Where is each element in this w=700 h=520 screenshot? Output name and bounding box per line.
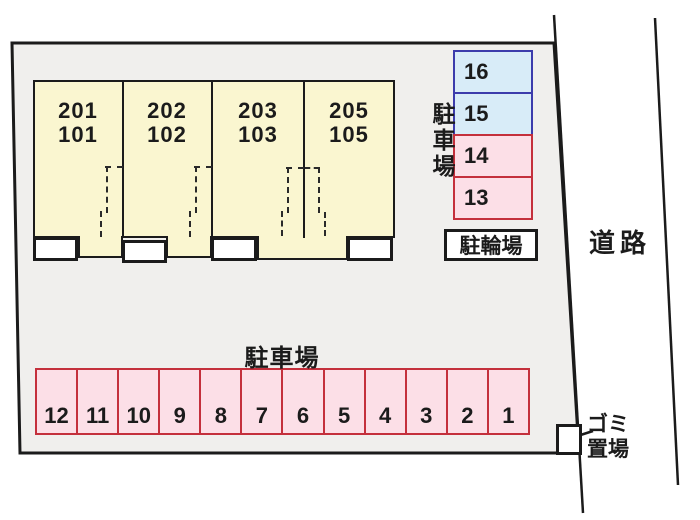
unit-lower-number: 103 [213, 123, 303, 147]
parking-space-3: 3 [405, 368, 448, 435]
stair-dash [305, 167, 319, 169]
building-step [78, 236, 123, 258]
parking-space-13: 13 [453, 176, 533, 220]
parking-space-2: 2 [446, 368, 489, 435]
garbage-area-label: ゴミ 置場 [587, 412, 629, 462]
bicycle-parking-label: 駐輪場 [460, 230, 523, 260]
parking-space-5: 5 [323, 368, 366, 435]
side-parking-label: 駐車場 [425, 102, 459, 180]
entrance-porch-4 [347, 237, 393, 261]
bottom-parking-row: 12 11 10 9 8 7 6 5 4 3 2 1 [35, 368, 530, 435]
stair-dash [318, 167, 320, 213]
space-number: 13 [464, 185, 488, 211]
space-number: 15 [464, 101, 488, 127]
road-edge-right [655, 18, 678, 485]
stair-dash [106, 166, 108, 213]
building-step [166, 236, 212, 258]
stair-dash [100, 211, 102, 237]
space-number: 14 [464, 143, 488, 169]
unit-label-205-105: 205 105 [304, 99, 394, 147]
parking-space-4: 4 [364, 368, 407, 435]
entrance-porch-3 [211, 237, 257, 261]
space-number: 16 [464, 59, 488, 85]
unit-label-202-102: 202 102 [122, 99, 212, 147]
stair-dash [189, 211, 191, 237]
parking-space-8: 8 [199, 368, 242, 435]
parking-space-7: 7 [240, 368, 283, 435]
stair-dash [324, 212, 326, 236]
unit-lower-number: 102 [122, 123, 212, 147]
garbage-label-line1: ゴミ [587, 412, 629, 437]
bicycle-parking-box: 駐輪場 [444, 229, 538, 261]
entrance-porch-2 [122, 240, 167, 263]
building-step [257, 236, 348, 260]
space-number: 4 [379, 403, 391, 429]
unit-upper-number: 205 [304, 99, 394, 123]
space-number: 9 [174, 403, 186, 429]
bottom-parking-label: 駐車場 [232, 338, 332, 373]
parking-space-15: 15 [453, 92, 533, 136]
space-number: 7 [256, 403, 268, 429]
parking-space-12: 12 [35, 368, 78, 435]
unit-upper-number: 203 [213, 99, 303, 123]
space-number: 5 [338, 403, 350, 429]
space-number: 11 [86, 403, 109, 429]
space-number: 6 [297, 403, 309, 429]
unit-lower-number: 105 [304, 123, 394, 147]
parking-space-9: 9 [158, 368, 201, 435]
space-number: 8 [215, 403, 227, 429]
space-number: 12 [44, 403, 68, 429]
entrance-porch-1 [33, 237, 78, 261]
unit-lower-number: 101 [33, 123, 123, 147]
space-number: 1 [502, 403, 514, 429]
unit-upper-number: 201 [33, 99, 123, 123]
space-number: 3 [420, 403, 432, 429]
stair-dash [287, 167, 289, 213]
site-plan: 201 101 202 102 203 103 205 105 駐車場 16 1… [0, 0, 700, 520]
space-number: 10 [126, 403, 150, 429]
parking-space-10: 10 [117, 368, 160, 435]
road-label: 道路 [589, 223, 651, 260]
parking-space-16: 16 [453, 50, 533, 94]
parking-space-6: 6 [281, 368, 324, 435]
space-number: 2 [461, 403, 473, 429]
garbage-label-line2: 置場 [587, 437, 629, 462]
side-parking-column: 16 15 14 13 [453, 50, 533, 220]
stair-dash [195, 166, 197, 213]
parking-space-14: 14 [453, 134, 533, 178]
unit-upper-number: 202 [122, 99, 212, 123]
parking-space-11: 11 [76, 368, 119, 435]
parking-space-1: 1 [487, 368, 530, 435]
unit-label-203-103: 203 103 [213, 99, 303, 147]
stair-dash [281, 211, 283, 236]
garbage-area-box [556, 424, 582, 455]
unit-label-201-101: 201 101 [33, 99, 123, 147]
